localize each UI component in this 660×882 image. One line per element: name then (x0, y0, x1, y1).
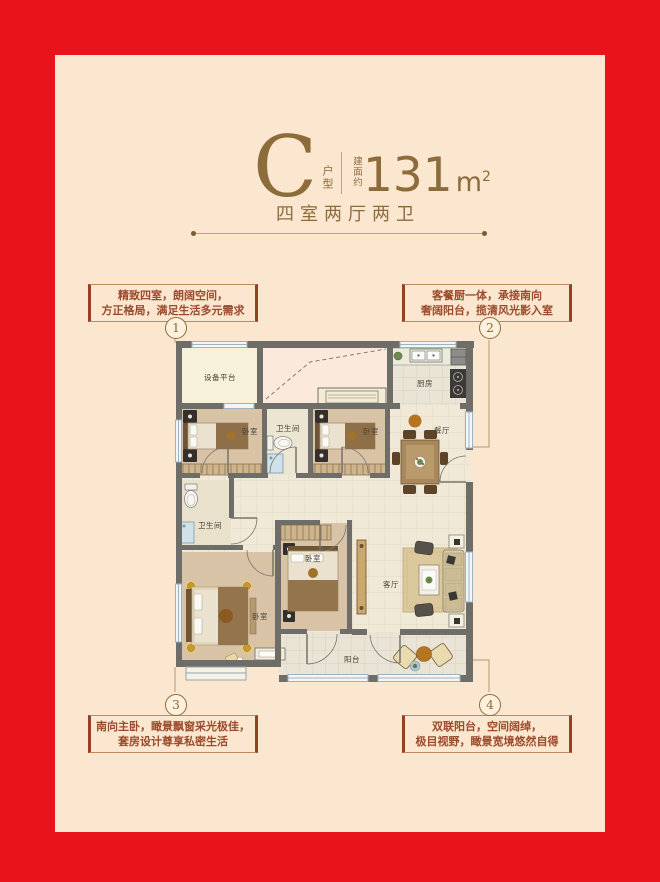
callout-2-line-1: 客餐厨一体，承接南向 (405, 289, 569, 303)
room-label-bath-top: 卫生间 (276, 423, 300, 433)
room-label-living: 客厅 (383, 579, 399, 589)
area-value: 131 m2 (363, 152, 491, 199)
content-panel: C 户型 建面约 131 m2 四室两厅两卫 精致四室，朗阔空间， 方正格局，满… (55, 55, 605, 832)
callout-1-line-1: 精致四室，朗阔空间， (91, 289, 255, 303)
area-prefix-label: 建面约 (349, 156, 363, 188)
bedroom-bottom-mid-furniture (281, 525, 338, 622)
callout-number-4: 4 (479, 694, 501, 716)
divider-dot-left (191, 231, 196, 236)
area-unit: m2 (456, 169, 491, 196)
callout-box-3: 南向主卧，瞰景飘窗采光极佳， 套房设计尊享私密生活 (88, 715, 258, 753)
callout-4-line-2: 极目视野，瞰景宽境悠然自得 (405, 735, 569, 749)
poster-page: C 户型 建面约 131 m2 四室两厅两卫 精致四室，朗阔空间， 方正格局，满… (0, 0, 660, 882)
room-label-bedroom-top-left: 卧室 (242, 426, 258, 436)
callout-number-2: 2 (479, 317, 501, 339)
unit-type-letter: C (253, 125, 317, 209)
room-label-master-bedroom: 卧室 (252, 611, 268, 621)
area-unit-sup: 2 (482, 169, 491, 185)
divider-dot-right (482, 231, 487, 236)
callout-3-line-1: 南向主卧，瞰景飘窗采光极佳， (91, 720, 255, 734)
floor-plan: 设备平台 厨房 卧室 卫生间 卧室 餐厅 卫生间 卧室 卧室 客厅 阳台 (165, 335, 500, 700)
room-label-bath-lower: 卫生间 (198, 520, 222, 530)
area-number: 131 (363, 152, 453, 199)
callout-box-4: 双联阳台，空间阔绰， 极目视野，瞰景宽境悠然自得 (402, 715, 572, 753)
callout-4-line-1: 双联阳台，空间阔绰， (405, 720, 569, 734)
layout-summary: 四室两厅两卫 (73, 200, 623, 226)
callout-number-1: 1 (165, 317, 187, 339)
unit-type-label: 户型 (319, 165, 335, 191)
callout-number-3: 3 (165, 694, 187, 716)
decorative-divider (193, 233, 485, 234)
header-divider (341, 152, 342, 194)
callout-3-line-2: 套房设计尊享私密生活 (91, 735, 255, 749)
callout-2-line-2: 奢阔阳台，揽清风光影入室 (405, 304, 569, 318)
room-label-balcony: 阳台 (344, 654, 360, 664)
room-label-bedroom-top-mid: 卧室 (363, 426, 379, 436)
area-unit-base: m (456, 167, 482, 198)
room-label-bedroom-bottom-mid: 卧室 (305, 553, 321, 563)
room-label-equipment-platform: 设备平台 (204, 372, 236, 382)
room-label-kitchen: 厨房 (417, 378, 433, 388)
room-label-dining: 餐厅 (434, 426, 450, 435)
callout-1-line-2: 方正格局，满足生活多元需求 (91, 304, 255, 318)
